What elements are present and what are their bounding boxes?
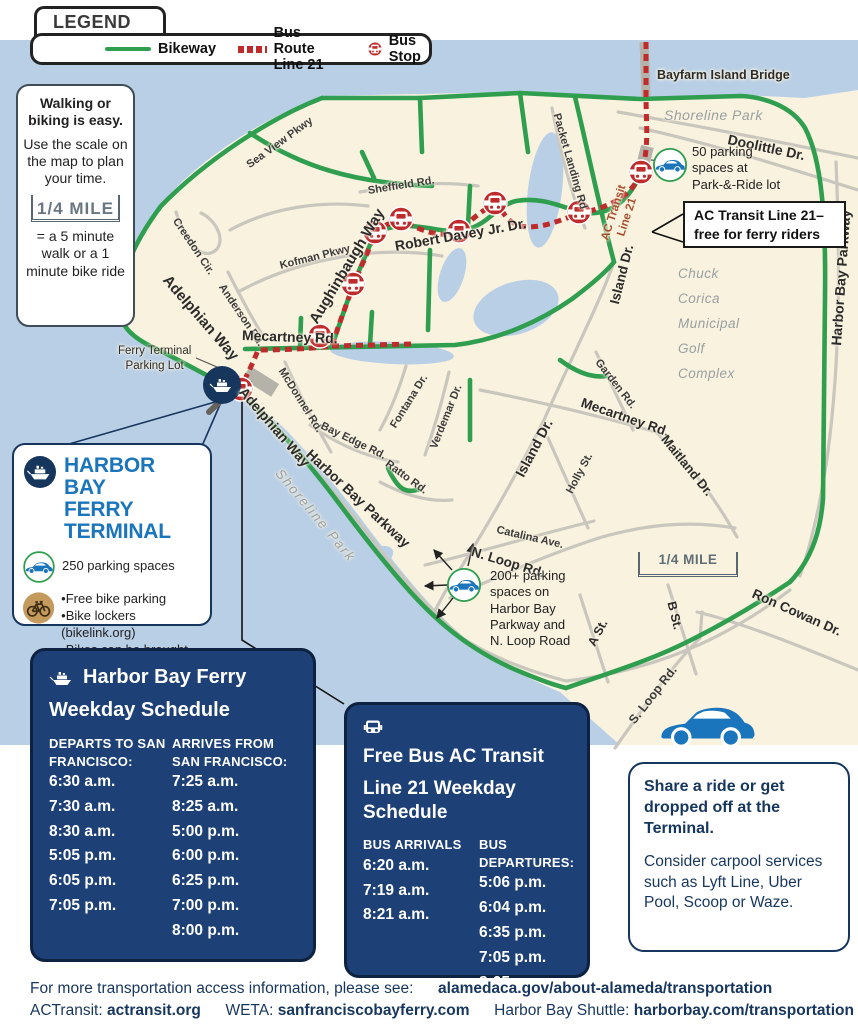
ac-transit-callout: AC Transit Line 21– free for ferry rider… [683,201,846,248]
depart-time: 6:30 a.m. [49,770,172,795]
parking-200-icon [448,569,480,601]
map-scale-label: 1/4 MILE [659,552,718,567]
bus-arrival-time: 6:20 a.m. [363,854,479,879]
bus-schedule-box: Free Bus AC Transit Line 21 Weekday Sche… [344,702,590,978]
arrive-time: 5:00 p.m. [172,820,297,845]
terminal-parking-label: 250 parking spaces [62,558,175,573]
arrives-header: ARRIVES FROM SAN FRANCISCO: [172,735,297,770]
bus-arrivals-column: BUS ARRIVALS 6:20 a.m. 7:19 a.m. 8:21 a.… [363,836,479,995]
ferry-terminal-marker [203,366,241,404]
bus-stop-icon [567,200,591,224]
ferry-schedule-title: Harbor Bay Ferry Weekday Schedule [49,665,297,723]
bus-departure-time: 5:06 p.m. [479,871,571,896]
arrive-time: 8:00 p.m. [172,919,297,944]
rideshare-title: Share a ride or get dropped off at the T… [644,777,834,839]
footer-shuttle-label: Harbor Bay Shuttle: [494,1002,629,1019]
walking-box: Walking or biking is easy. Use the scale… [16,84,135,327]
walking-title: Walking or biking is easy. [23,95,128,129]
arrive-time: 6:25 p.m. [172,869,297,894]
bus-schedule-title: Free Bus AC Transit Line 21 Weekday Sche… [363,719,571,824]
depart-time: 7:05 p.m. [49,894,172,919]
bus-stop-icon [447,219,471,243]
bike-icon [23,591,54,625]
bus-stop-icon [341,272,365,296]
bus-stop-icon [389,207,413,231]
legend-title: LEGEND [53,12,131,33]
bus-icon [363,719,383,737]
walking-footnote: = a 5 minute walk or a 1 minute bike rid… [23,228,128,279]
footer-actransit-label: ACTransit: [30,1002,103,1019]
ac-callout-line2: free for ferry riders [694,225,844,243]
bus-stop-icon [308,324,332,348]
footer-line1: For more transportation access informati… [30,978,858,1000]
arrive-time: 7:25 a.m. [172,770,297,795]
bus-departure-time: 7:05 p.m. [479,946,571,971]
terminal-parking-row: 250 parking spaces [23,551,201,583]
footer-actransit-link[interactable]: actransit.org [107,1002,201,1019]
ferry-icon [49,668,75,688]
legend-item-bus-route: Bus Route Line 21 [226,25,346,73]
departs-header: DEPARTS TO SAN FRANCISCO: [49,735,169,770]
bus-schedule-title-line1: Free Bus AC Transit [363,745,544,769]
footer-line1-text: For more transportation access informati… [30,980,413,997]
footer-shuttle-link[interactable]: harborbay.com/transportation [634,1002,854,1019]
bus-stop-icon [368,38,382,60]
bus-stop-icon [363,220,387,244]
rideshare-car-icon [638,700,768,762]
bus-arrival-time: 7:19 a.m. [363,879,479,904]
terminal-title-row: HARBOR BAY FERRY TERMINAL [23,455,201,543]
depart-time: 8:30 a.m. [49,820,172,845]
bus-route-dash-icon [238,46,267,53]
ferry-schedule-box: Harbor Bay Ferry Weekday Schedule DEPART… [30,648,316,962]
walking-body: Use the scale on the map to plan your ti… [23,136,128,187]
terminal-title-line2: FERRY TERMINAL [64,499,201,543]
arrive-time: 8:25 a.m. [172,795,297,820]
bus-departures-header: BUS DEPARTURES: [479,836,571,871]
depart-time: 7:30 a.m. [49,795,172,820]
bike-item: •Free bike parking [61,591,201,608]
bus-departure-time: 6:35 p.m. [479,921,571,946]
bus-stop-icon [483,191,507,215]
legend-bar: Bikeway Bus Route Line 21 Bus Stop [30,33,432,65]
legend-tab: LEGEND [34,6,166,36]
legend-item-bikeway: Bikeway [105,41,216,57]
ferry-schedule-title-line2: Weekday Schedule [49,698,297,723]
ferry-terminal-box: HARBOR BAY FERRY TERMINAL 250 parking sp… [12,443,212,626]
rideshare-body: Consider carpool services such as Lyft L… [644,852,834,912]
arrive-time: 7:00 p.m. [172,894,297,919]
legend-bus-stop-label: Bus Stop [389,33,429,65]
terminal-title-line1: HARBOR BAY [64,455,201,499]
ferry-icon [23,455,57,489]
bike-item: •Bike lockers (bikelink.org) [61,608,201,642]
footer-weta-link[interactable]: sanfranciscobayferry.com [278,1002,470,1019]
bus-departure-time: 6:04 p.m. [479,896,571,921]
page: { "colors":{"bikeway":"#2f9e4f","bus_rou… [0,0,858,1024]
footer-alameda-link[interactable]: alamedaca.gov/about-alameda/transportati… [438,980,772,997]
bus-arrivals-header: BUS ARRIVALS [363,836,479,854]
bikeway-line-icon [105,47,151,51]
depart-time: 6:05 p.m. [49,869,172,894]
bus-schedule-title-line2: Line 21 Weekday Schedule [363,777,571,825]
arrive-time: 6:00 p.m. [172,844,297,869]
arrives-column: ARRIVES FROM SAN FRANCISCO: 7:25 a.m. 8:… [172,735,297,944]
legend-item-bus-stop: Bus Stop [368,33,429,65]
rideshare-box: Share a ride or get dropped off at the T… [628,762,850,952]
footer-line2: ACTransit: actransit.org WETA: sanfranci… [30,1000,858,1022]
footer: For more transportation access informati… [0,978,858,1023]
footer-weta-label: WETA: [225,1002,273,1019]
bus-departures-column: BUS DEPARTURES: 5:06 p.m. 6:04 p.m. 6:35… [479,836,571,995]
bus-stop-icon [629,160,653,184]
departs-column: DEPARTS TO SAN FRANCISCO: 6:30 a.m. 7:30… [49,735,172,944]
walking-scale: 1/4 MILE [31,195,120,222]
legend-bus-route-label: Bus Route Line 21 [274,25,346,73]
parking-50-icon [654,149,686,181]
legend-bikeway-label: Bikeway [158,41,216,57]
depart-time: 5:05 p.m. [49,844,172,869]
walking-scale-label: 1/4 MILE [37,199,114,220]
car-icon [23,551,55,583]
map-scale-bar: 1/4 MILE [638,552,738,577]
bus-arrival-time: 8:21 a.m. [363,903,479,928]
ac-callout-line1: AC Transit Line 21– [694,206,844,224]
ferry-schedule-title-line1: Harbor Bay Ferry [83,665,246,690]
